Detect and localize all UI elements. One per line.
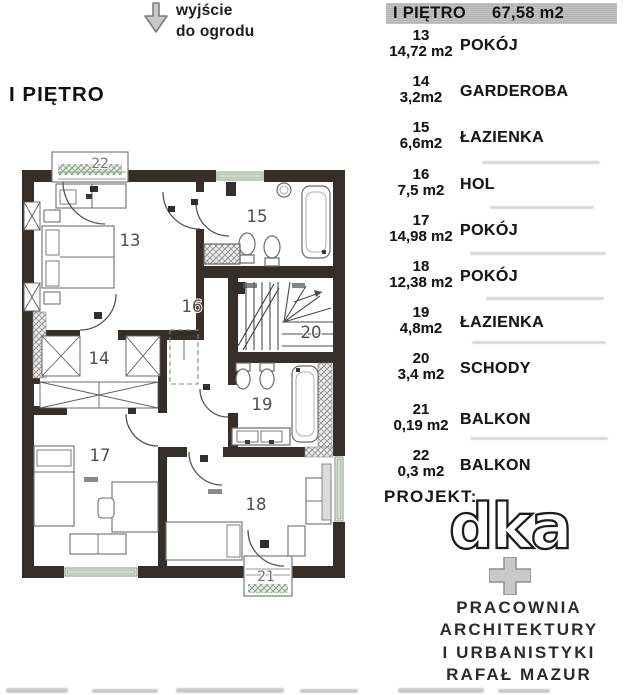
legend-header-area: 67,58 m2 bbox=[492, 4, 564, 23]
room-number: 20 bbox=[413, 351, 430, 367]
room-area: 4,8m2 bbox=[400, 321, 443, 337]
studio-line-1: PRACOWNIA bbox=[433, 597, 605, 619]
room-area: 0,3 m2 bbox=[398, 464, 445, 480]
legend-row: 1314,72 m2 POKÓJ bbox=[382, 28, 622, 74]
room-number: 22 bbox=[413, 448, 430, 464]
studio-line-2: ARCHITEKTURY bbox=[433, 619, 605, 641]
room-label-20: 20 bbox=[301, 323, 322, 342]
room-area: 0,19 m2 bbox=[393, 418, 448, 434]
scan-artifact bbox=[470, 437, 608, 440]
balcony-22 bbox=[52, 152, 128, 182]
room-name: ŁAZIENKA bbox=[460, 314, 544, 332]
room-label-19: 19 bbox=[252, 395, 273, 414]
furniture bbox=[24, 184, 331, 560]
room-name: BALKON bbox=[460, 411, 531, 429]
studio-line-3: I URBANISTYKI bbox=[433, 642, 605, 664]
garden-exit-note: wyjście do ogrodu bbox=[176, 1, 254, 42]
room-label-17: 17 bbox=[90, 446, 111, 465]
studio-name-block: PRACOWNIA ARCHITEKTURY I URBANISTYKI RAF… bbox=[433, 597, 605, 687]
cutoff-text-artifact bbox=[498, 689, 550, 693]
room-number: 19 bbox=[413, 305, 430, 321]
room-number: 15 bbox=[413, 120, 430, 136]
room-name: POKÓJ bbox=[460, 37, 518, 55]
cutoff-text-artifact bbox=[6, 688, 68, 693]
bathroom-19-fixtures bbox=[232, 363, 318, 445]
room-name: POKÓJ bbox=[460, 268, 518, 286]
room-area: 6,6m2 bbox=[400, 136, 443, 152]
cutoff-text-artifact bbox=[176, 688, 284, 693]
dka-logo: dka bbox=[449, 496, 570, 558]
room-label-16: 16 bbox=[182, 297, 203, 316]
scan-artifact bbox=[470, 252, 606, 255]
room-number: 21 bbox=[413, 402, 430, 418]
scan-artifact bbox=[486, 297, 604, 300]
legend-row: 194,8m2 ŁAZIENKA bbox=[382, 305, 622, 351]
room-name: GARDEROBA bbox=[460, 83, 569, 101]
room-label-13: 13 bbox=[120, 231, 141, 250]
room-legend: 1314,72 m2 POKÓJ 143,2m2 GARDEROBA 156,6… bbox=[382, 28, 622, 494]
scanned-floor-plan-page: 13 14 15 16 17 18 19 20 21 22 wyjście do… bbox=[0, 0, 624, 695]
plan-title: I PIĘTRO bbox=[9, 83, 105, 107]
garden-exit-line1: wyjście bbox=[176, 1, 254, 22]
room-area: 3,4 m2 bbox=[398, 367, 445, 383]
room-name: ŁAZIENKA bbox=[460, 129, 544, 147]
room-name: POKÓJ bbox=[460, 222, 518, 240]
room-number: 13 bbox=[413, 28, 430, 44]
legend-row: 156,6m2 ŁAZIENKA bbox=[382, 120, 622, 166]
cutoff-text-artifact bbox=[398, 688, 484, 693]
studio-line-4: RAFAŁ MAZUR bbox=[433, 664, 605, 686]
garden-exit-line2: do ogrodu bbox=[176, 22, 254, 43]
room-area: 3,2m2 bbox=[400, 90, 443, 106]
room-number: 16 bbox=[413, 167, 430, 183]
room-label-22: 22 bbox=[91, 156, 109, 172]
room-area: 12,38 m2 bbox=[389, 275, 452, 291]
room-label-14: 14 bbox=[89, 349, 110, 368]
room-number: 14 bbox=[413, 74, 430, 90]
legend-row: 210,19 m2 BALKON bbox=[382, 402, 622, 448]
scan-artifact bbox=[490, 206, 594, 209]
legend-row: 143,2m2 GARDEROBA bbox=[382, 74, 622, 120]
cutoff-text-artifact bbox=[300, 689, 358, 693]
room-number: 18 bbox=[413, 259, 430, 275]
cutoff-text-artifact bbox=[92, 689, 158, 693]
room-area: 14,98 m2 bbox=[389, 229, 452, 245]
plus-cross-logo-icon bbox=[489, 557, 531, 595]
room-number: 17 bbox=[413, 213, 430, 229]
room-label-15: 15 bbox=[247, 207, 268, 226]
legend-header-title: I PIĘTRO bbox=[393, 4, 466, 23]
scan-artifact bbox=[482, 161, 600, 164]
room-label-18: 18 bbox=[246, 495, 267, 514]
room-name: HOL bbox=[460, 176, 495, 194]
room-area: 14,72 m2 bbox=[389, 44, 452, 60]
room-name: SCHODY bbox=[460, 360, 531, 378]
garden-exit-arrow-icon bbox=[145, 3, 167, 32]
room-label-21: 21 bbox=[257, 569, 275, 585]
room-area: 7,5 m2 bbox=[398, 183, 445, 199]
room-name: BALKON bbox=[460, 457, 531, 475]
legend-header: I PIĘTRO 67,58 m2 bbox=[386, 3, 617, 24]
legend-row: 203,4 m2 SCHODY bbox=[382, 351, 622, 397]
scan-artifact bbox=[472, 341, 606, 344]
